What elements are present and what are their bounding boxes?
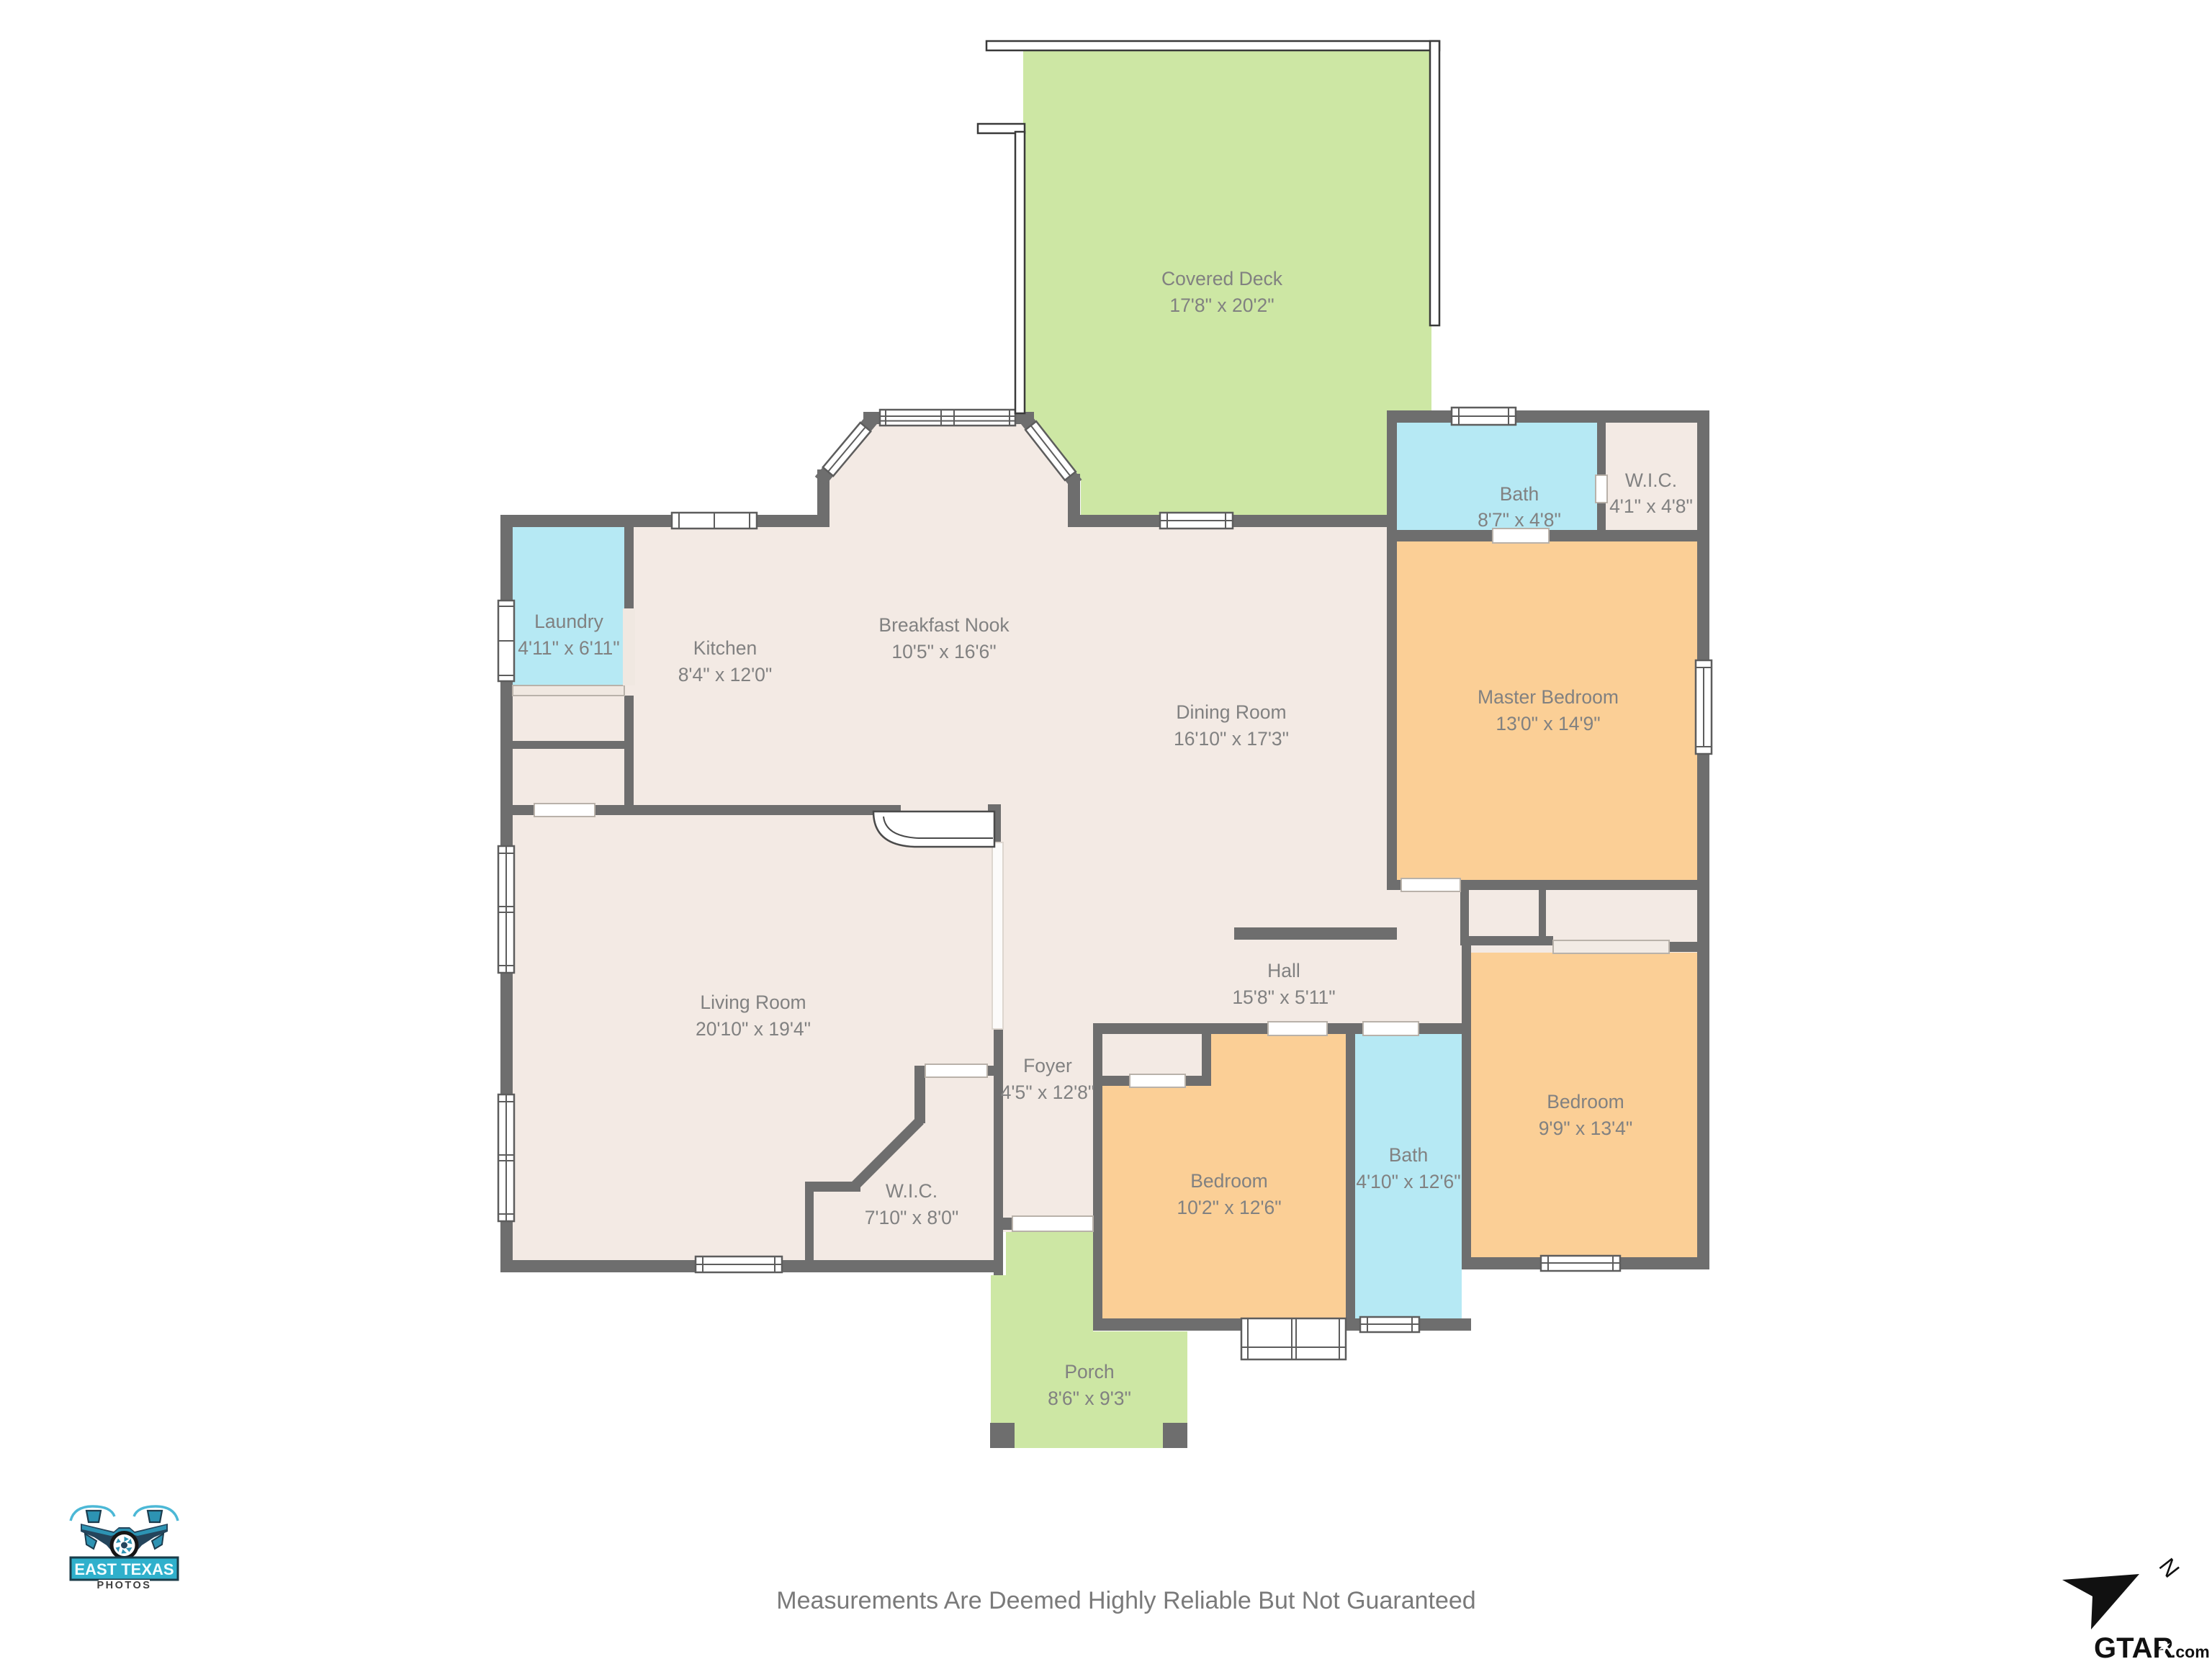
svg-text:15'8" x 5'11": 15'8" x 5'11" bbox=[1232, 986, 1335, 1008]
svg-text:Covered Deck: Covered Deck bbox=[1161, 268, 1283, 289]
svg-text:4'5" x 12'8": 4'5" x 12'8" bbox=[1001, 1082, 1095, 1103]
svg-text:.com: .com bbox=[2171, 1642, 2210, 1659]
svg-text:Bath: Bath bbox=[1389, 1144, 1429, 1166]
svg-text:Dining Room: Dining Room bbox=[1176, 701, 1286, 723]
svg-text:Living Room: Living Room bbox=[700, 992, 806, 1013]
svg-text:Kitchen: Kitchen bbox=[693, 637, 757, 659]
svg-text:Measurements Are Deemed Highly: Measurements Are Deemed Highly Reliable … bbox=[776, 1587, 1475, 1614]
svg-text:Bath: Bath bbox=[1500, 483, 1539, 505]
svg-text:4'1" x 4'8": 4'1" x 4'8" bbox=[1609, 495, 1693, 517]
svg-text:16'10" x 17'3": 16'10" x 17'3" bbox=[1174, 728, 1289, 750]
svg-text:4'10" x 12'6": 4'10" x 12'6" bbox=[1356, 1171, 1460, 1192]
svg-text:EAST TEXAS: EAST TEXAS bbox=[74, 1560, 174, 1578]
svg-text:20'10" x 19'4": 20'10" x 19'4" bbox=[696, 1018, 811, 1040]
svg-text:W.I.C.: W.I.C. bbox=[886, 1180, 938, 1202]
svg-text:8'4" x 12'0": 8'4" x 12'0" bbox=[678, 664, 773, 685]
svg-text:Breakfast Nook: Breakfast Nook bbox=[878, 614, 1010, 636]
svg-text:Porch: Porch bbox=[1064, 1361, 1114, 1382]
svg-text:9'9" x 13'4": 9'9" x 13'4" bbox=[1539, 1118, 1633, 1139]
svg-text:4'11" x 6'11": 4'11" x 6'11" bbox=[518, 637, 619, 659]
svg-text:Bedroom: Bedroom bbox=[1547, 1091, 1624, 1112]
svg-text:Laundry: Laundry bbox=[534, 611, 604, 632]
svg-text:W.I.C.: W.I.C. bbox=[1625, 469, 1677, 491]
svg-text:8'7" x 4'8": 8'7" x 4'8" bbox=[1478, 509, 1561, 531]
svg-text:17'8" x 20'2": 17'8" x 20'2" bbox=[1169, 295, 1274, 316]
svg-text:Bedroom: Bedroom bbox=[1190, 1170, 1268, 1192]
svg-text:10'2" x 12'6": 10'2" x 12'6" bbox=[1177, 1197, 1281, 1218]
svg-text:8'6" x 9'3": 8'6" x 9'3" bbox=[1048, 1388, 1131, 1409]
svg-text:13'0" x 14'9": 13'0" x 14'9" bbox=[1496, 713, 1600, 734]
svg-text:Master Bedroom: Master Bedroom bbox=[1478, 686, 1619, 708]
svg-text:Hall: Hall bbox=[1267, 960, 1300, 981]
svg-text:PHOTOS: PHOTOS bbox=[97, 1580, 152, 1591]
svg-text:7'10" x 8'0": 7'10" x 8'0" bbox=[865, 1207, 959, 1228]
svg-text:Foyer: Foyer bbox=[1023, 1055, 1072, 1076]
svg-text:10'5" x 16'6": 10'5" x 16'6" bbox=[891, 641, 996, 662]
